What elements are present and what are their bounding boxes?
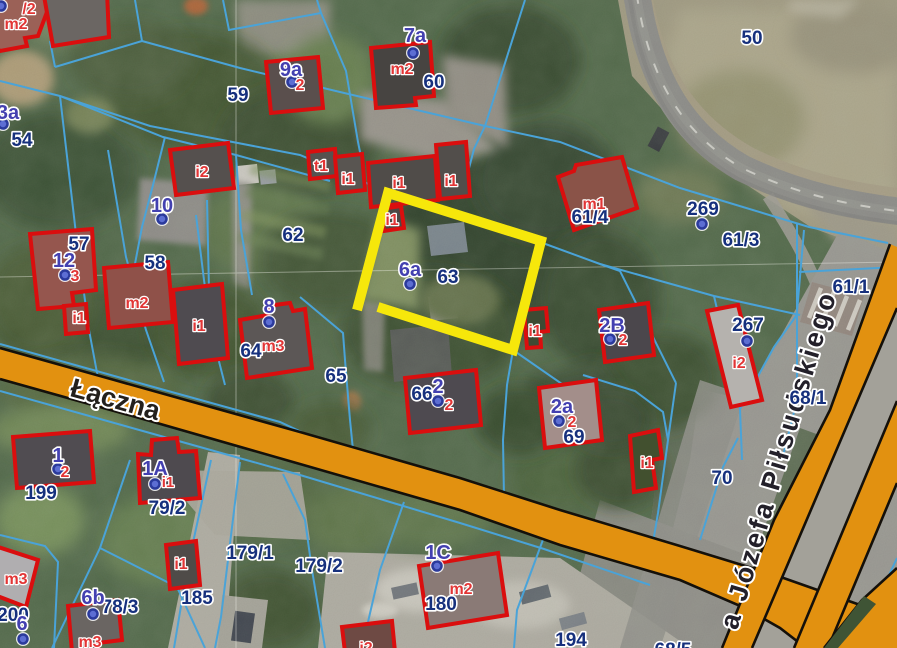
svg-text:i1: i1 — [341, 171, 354, 188]
svg-text:6: 6 — [16, 613, 27, 635]
svg-text:61/1: 61/1 — [833, 277, 870, 298]
svg-text:3a: 3a — [0, 102, 20, 124]
svg-text:m1: m1 — [582, 196, 605, 213]
svg-text:7a: 7a — [404, 25, 427, 47]
svg-text:2: 2 — [296, 77, 305, 94]
svg-text:78/3: 78/3 — [102, 597, 139, 618]
svg-text:i1: i1 — [72, 310, 85, 327]
svg-text:179/2: 179/2 — [295, 556, 343, 577]
svg-text:2: 2 — [619, 332, 628, 349]
svg-text:1C: 1C — [425, 542, 451, 564]
svg-text:2: 2 — [568, 414, 577, 431]
svg-text:63: 63 — [437, 267, 458, 288]
svg-text:65: 65 — [325, 366, 347, 387]
svg-text:10: 10 — [151, 195, 173, 217]
svg-text:54: 54 — [11, 130, 33, 151]
svg-text:m2: m2 — [449, 581, 472, 598]
svg-text:68/1: 68/1 — [790, 388, 827, 409]
svg-text:3: 3 — [71, 268, 80, 285]
svg-text:185: 185 — [181, 588, 213, 609]
svg-text:i1: i1 — [162, 474, 175, 491]
svg-text:267: 267 — [732, 315, 764, 336]
svg-text:i2: i2 — [732, 355, 745, 372]
svg-text:61/3: 61/3 — [723, 230, 760, 251]
svg-text:8: 8 — [263, 296, 274, 318]
svg-text:194: 194 — [555, 630, 587, 648]
svg-text:179/1: 179/1 — [226, 543, 274, 564]
svg-text:m3: m3 — [4, 571, 27, 588]
svg-text:2: 2 — [61, 464, 70, 481]
svg-text:m3: m3 — [261, 338, 284, 355]
svg-text:58: 58 — [144, 253, 165, 274]
svg-text:i1: i1 — [640, 455, 653, 472]
svg-text:64: 64 — [240, 341, 262, 362]
svg-text:60: 60 — [423, 72, 444, 93]
svg-text:70: 70 — [711, 468, 732, 489]
svg-text:68/5: 68/5 — [655, 640, 692, 648]
svg-text:/2: /2 — [22, 1, 35, 18]
svg-text:i2: i2 — [195, 164, 208, 181]
svg-text:i1: i1 — [444, 173, 457, 190]
svg-text:59: 59 — [227, 85, 248, 106]
svg-text:i1: i1 — [385, 212, 398, 229]
svg-text:199: 199 — [25, 483, 57, 504]
svg-text:79/2: 79/2 — [149, 498, 186, 519]
svg-text:i1: i1 — [192, 318, 205, 335]
svg-text:i2: i2 — [359, 640, 372, 648]
svg-text:2: 2 — [445, 397, 454, 414]
svg-text:6a: 6a — [399, 259, 422, 281]
svg-text:i1: i1 — [392, 175, 405, 192]
svg-text:i1: i1 — [174, 556, 187, 573]
svg-text:2: 2 — [432, 376, 443, 398]
svg-text:6b: 6b — [81, 587, 104, 609]
svg-text:m2: m2 — [390, 61, 413, 78]
svg-text:62: 62 — [282, 225, 303, 246]
svg-text:50: 50 — [741, 28, 762, 49]
svg-text:269: 269 — [687, 199, 719, 220]
svg-text:m3: m3 — [78, 634, 101, 648]
svg-text:m2: m2 — [125, 295, 148, 312]
svg-text:66: 66 — [411, 384, 432, 405]
svg-text:i1: i1 — [528, 323, 541, 340]
svg-text:t1: t1 — [314, 158, 328, 175]
svg-text:m2: m2 — [4, 16, 27, 33]
